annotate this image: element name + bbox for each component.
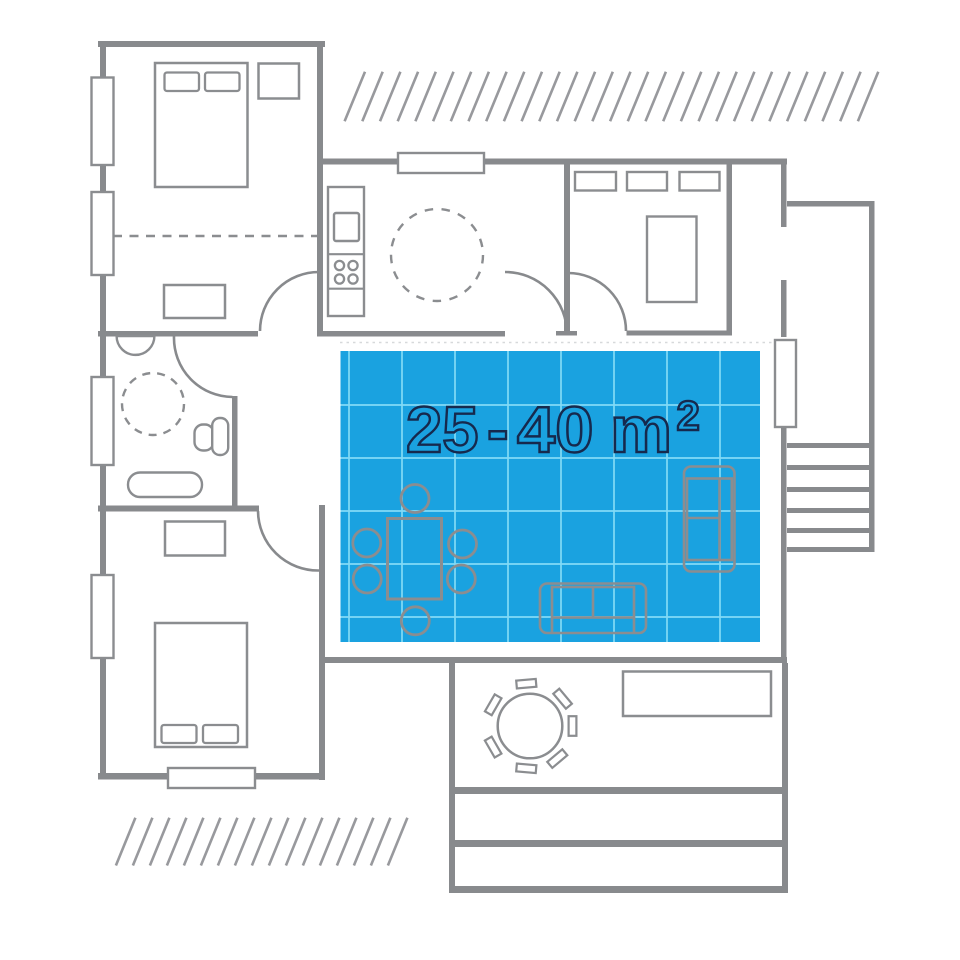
svg-text:40: 40	[517, 393, 594, 466]
svg-text:25: 25	[406, 393, 479, 466]
svg-text:m: m	[610, 393, 672, 466]
svg-text:2: 2	[677, 392, 700, 439]
svg-text:-: -	[487, 393, 509, 466]
